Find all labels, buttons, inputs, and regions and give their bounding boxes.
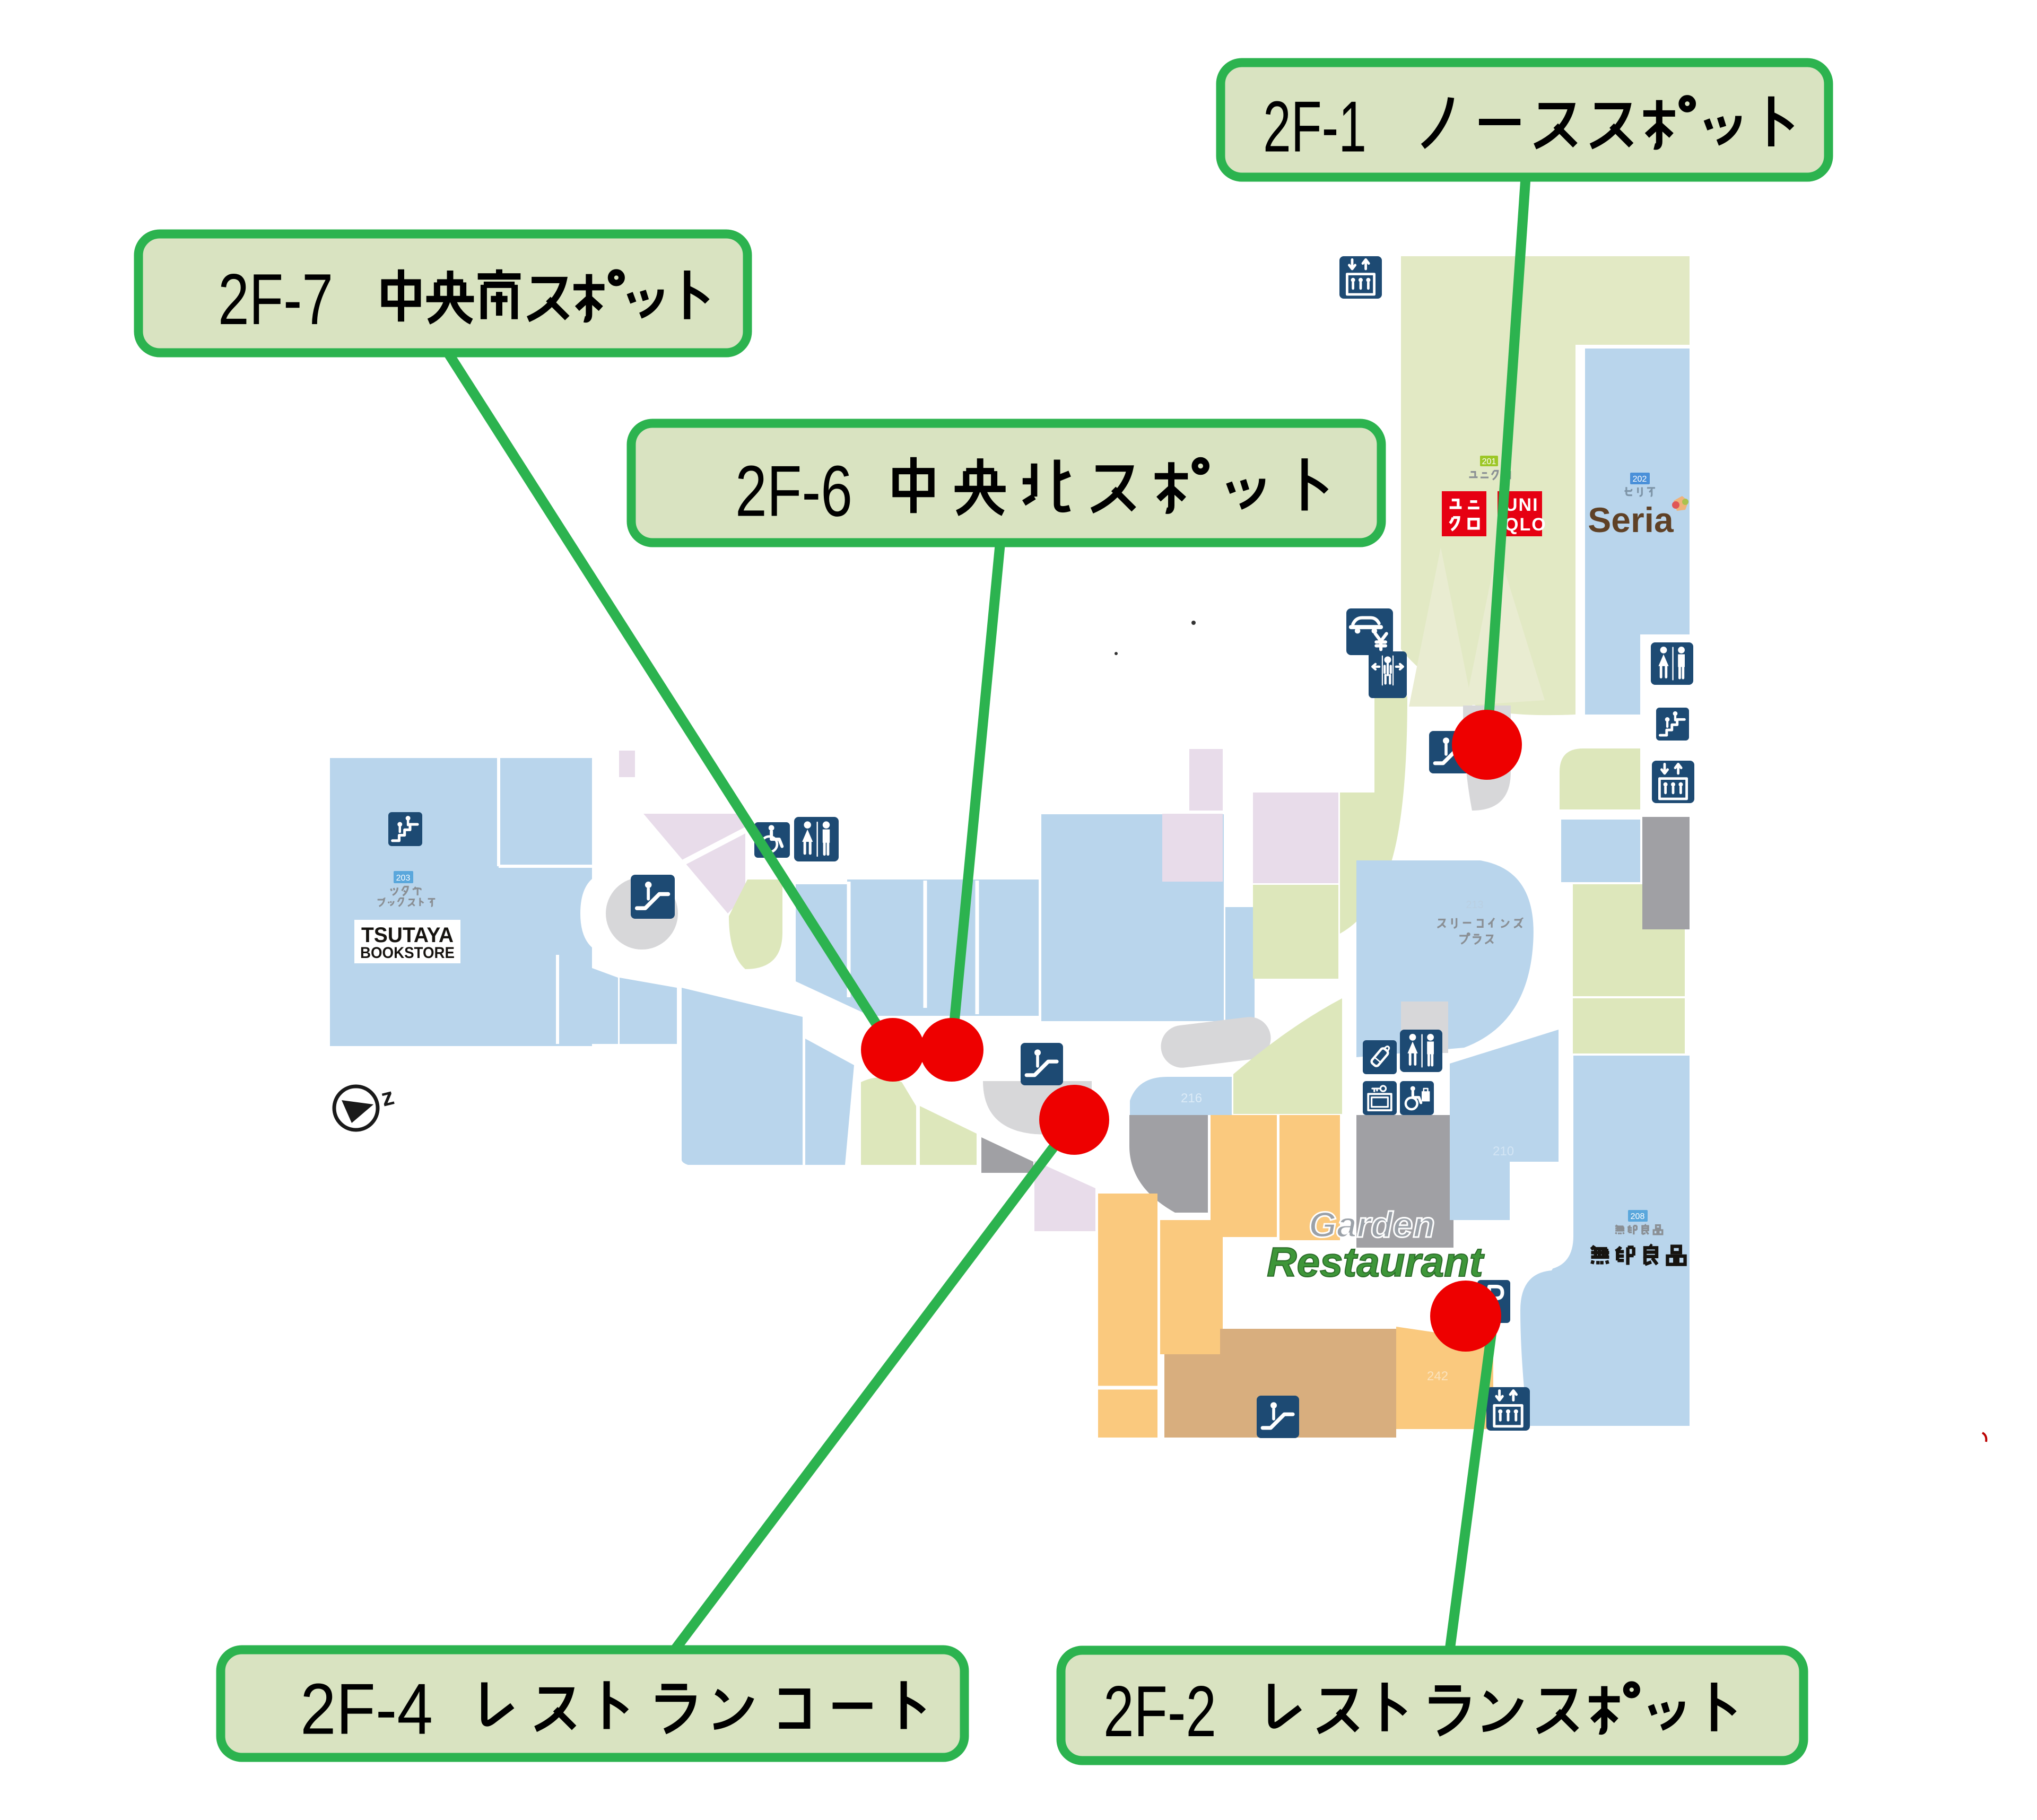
svg-text:BOOKSTORE: BOOKSTORE <box>360 944 455 962</box>
svg-text:2F-6: 2F-6 <box>735 451 852 532</box>
svg-text:216: 216 <box>1181 1091 1202 1105</box>
svg-text:213: 213 <box>1466 899 1483 911</box>
svg-text:2F-1: 2F-1 <box>1263 86 1366 167</box>
svg-text:UNI: UNI <box>1504 495 1539 515</box>
svg-text:202: 202 <box>1633 475 1647 484</box>
svg-text:2F-2: 2F-2 <box>1103 1671 1216 1752</box>
svg-text:z: z <box>378 1082 397 1112</box>
svg-text:TSUTAYA: TSUTAYA <box>361 924 454 947</box>
svg-text:QLO: QLO <box>1504 515 1547 535</box>
svg-text:208: 208 <box>1631 1212 1645 1221</box>
svg-text:2F-4: 2F-4 <box>300 1669 433 1749</box>
svg-text:242: 242 <box>1427 1369 1448 1383</box>
svg-text:203: 203 <box>396 874 411 883</box>
svg-text:Restaurant: Restaurant <box>1267 1239 1484 1285</box>
svg-text:Seria: Seria <box>1588 500 1674 539</box>
svg-text:201: 201 <box>1482 457 1496 466</box>
svg-text:2F-7: 2F-7 <box>218 259 333 339</box>
svg-text:210: 210 <box>1493 1144 1514 1159</box>
